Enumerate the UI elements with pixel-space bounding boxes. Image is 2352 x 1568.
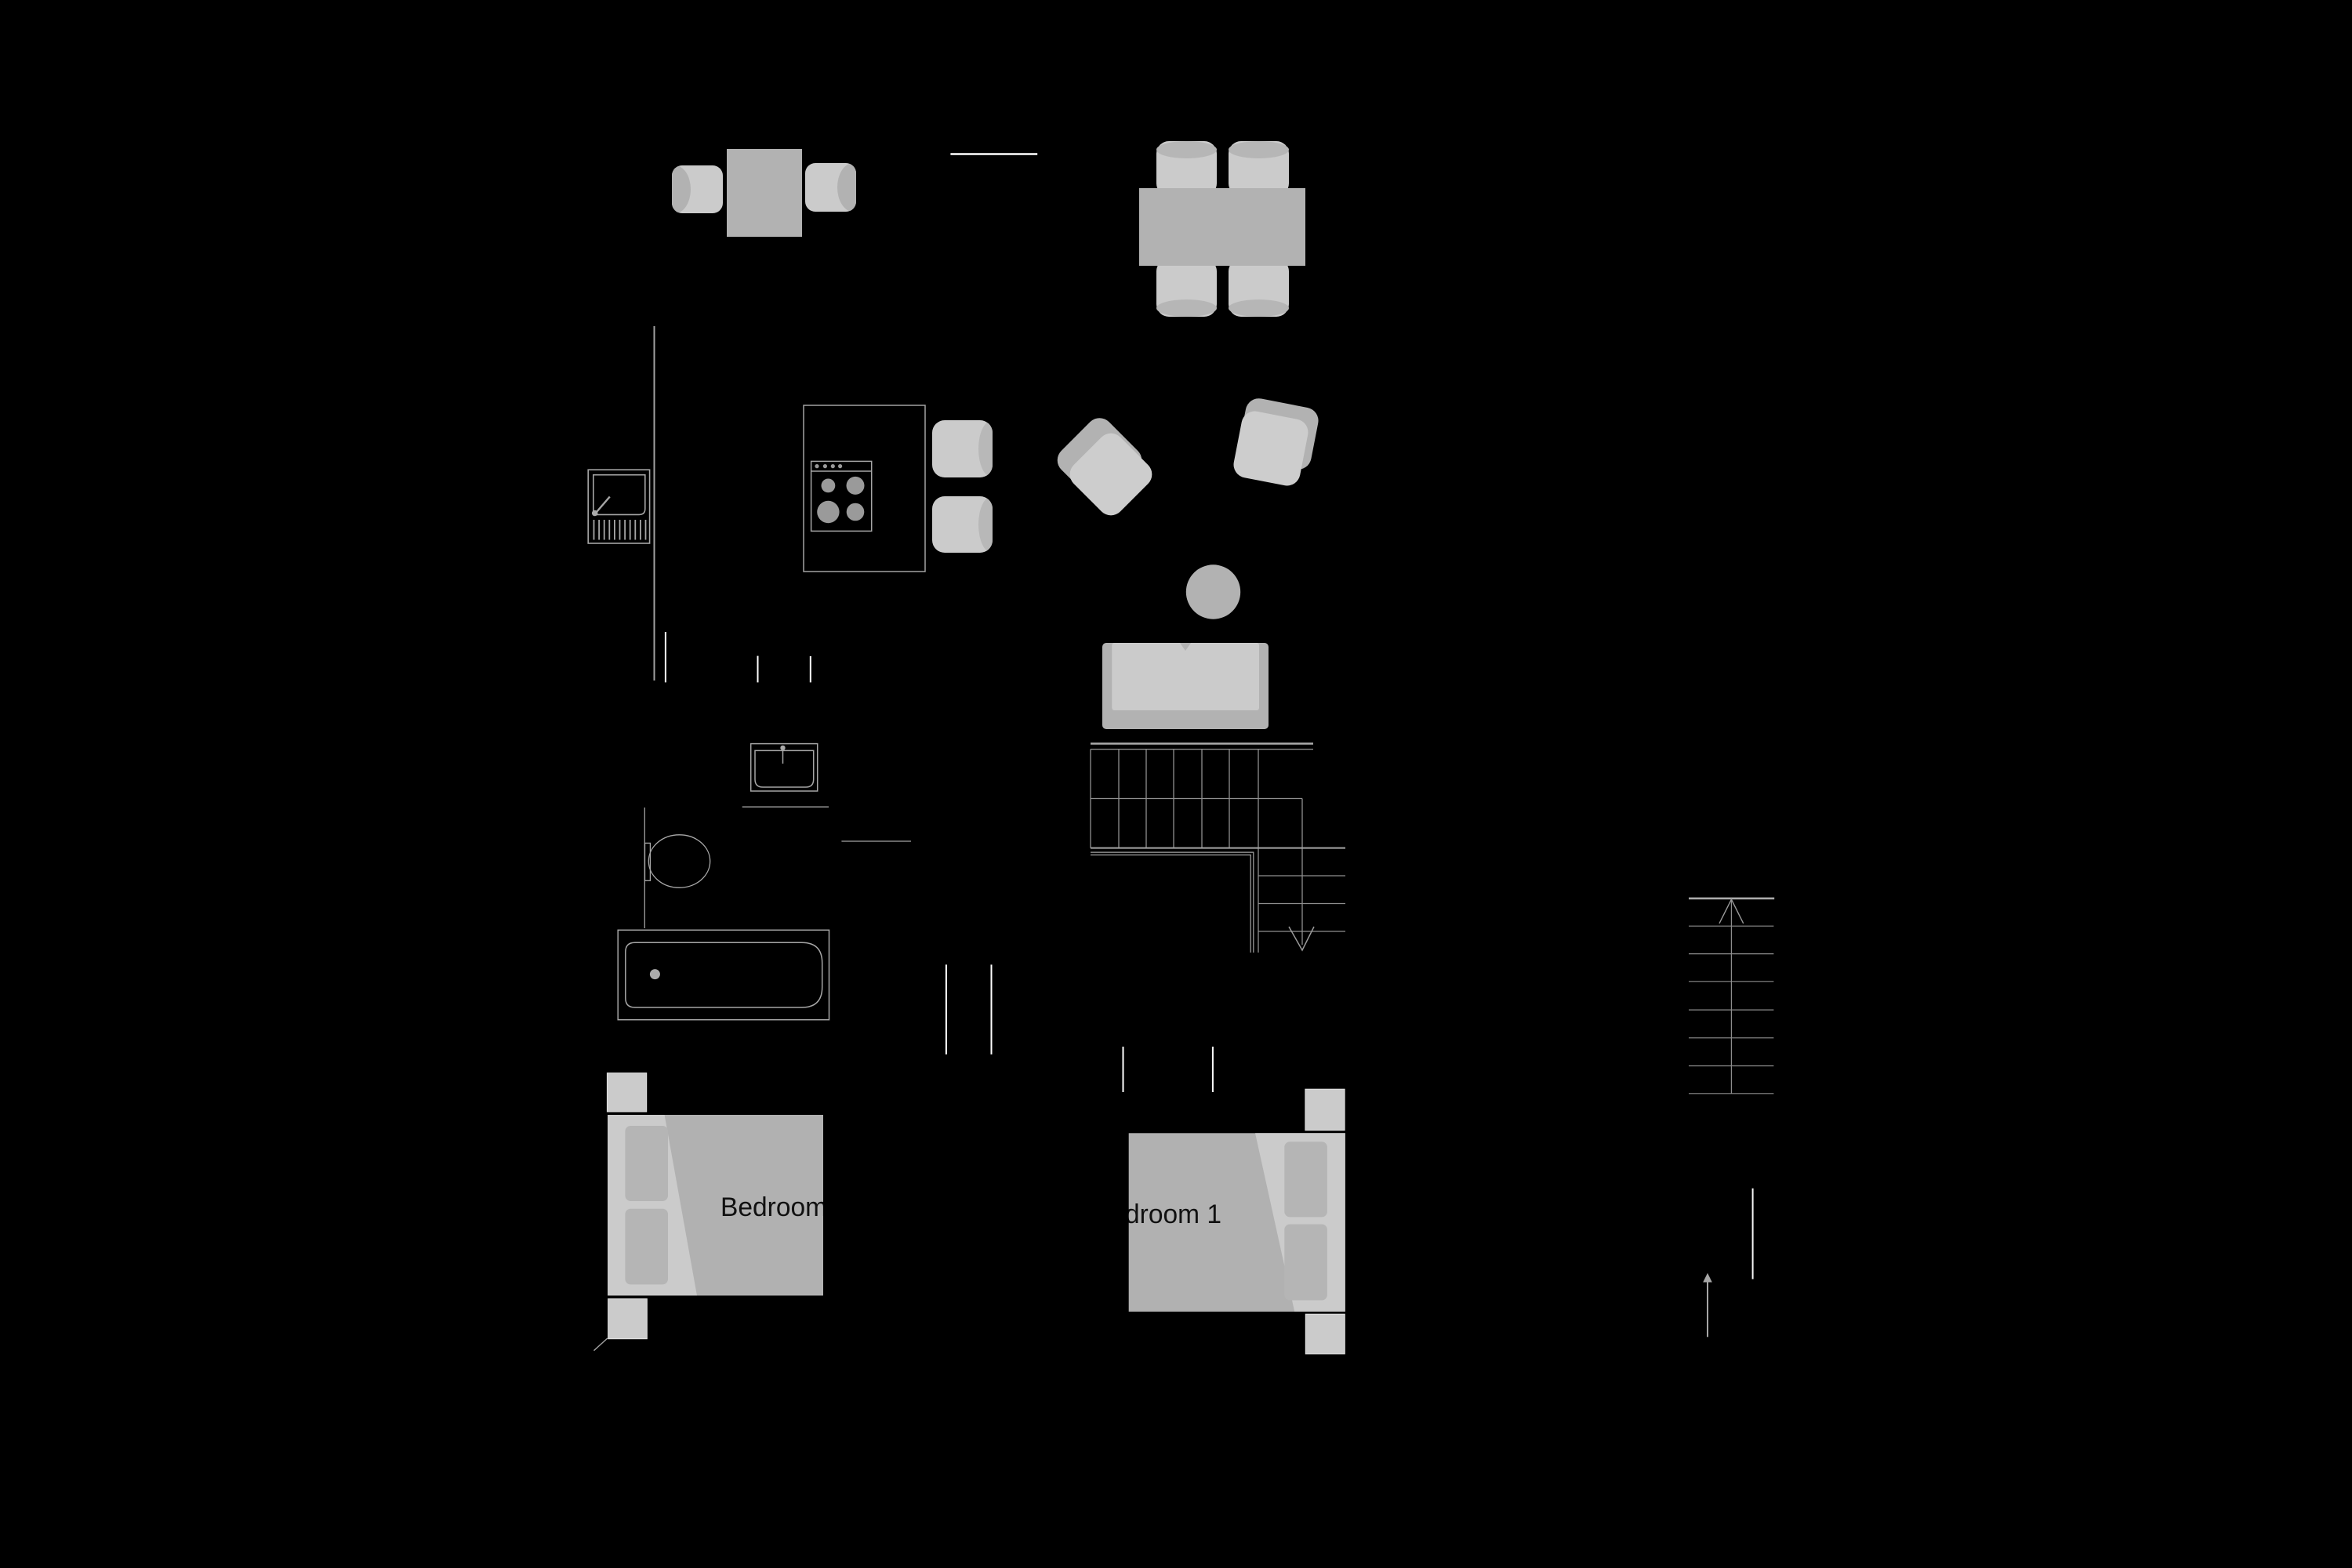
svg-text:Bedroom 1: Bedroom 1 xyxy=(1093,1200,1221,1229)
svg-text:Bedroom 2: Bedroom 2 xyxy=(720,1192,849,1222)
